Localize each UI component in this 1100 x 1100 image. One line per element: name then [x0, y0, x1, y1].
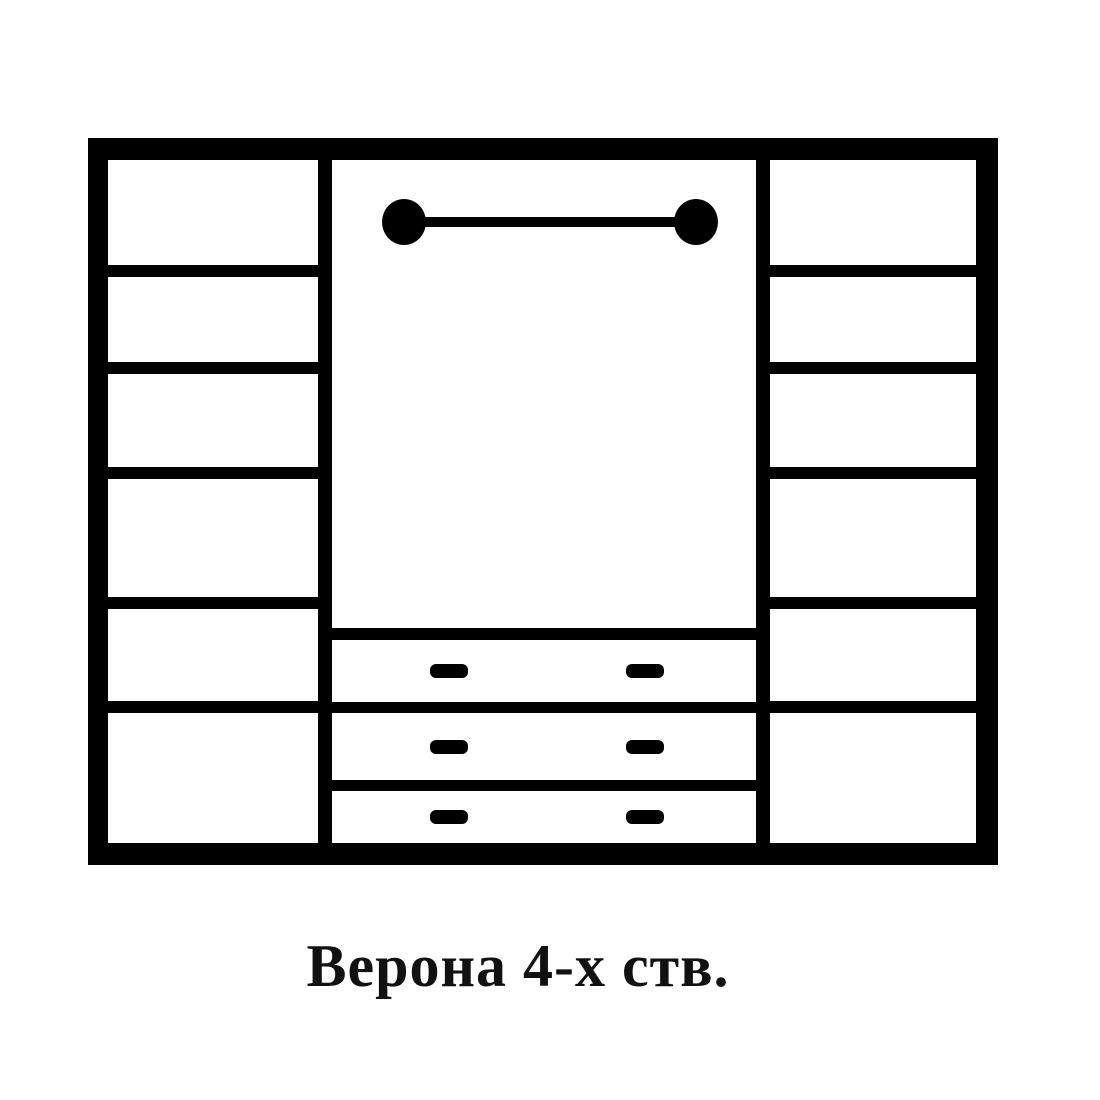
- left-shelf-3: [108, 374, 318, 467]
- drawer-handle-icon: [626, 740, 664, 754]
- drawer-handle-icon: [626, 664, 664, 678]
- drawer-3: [332, 791, 756, 843]
- right-shelf-6: [770, 713, 976, 843]
- right-shelf-5: [770, 609, 976, 701]
- hanging-rod: [404, 217, 696, 227]
- left-shelf-1: [108, 160, 318, 265]
- rod-end-cap-left-icon: [382, 199, 426, 245]
- hanging-compartment: [332, 160, 756, 628]
- left-shelf-4: [108, 479, 318, 597]
- right-shelf-1: [770, 160, 976, 265]
- drawer-handle-icon: [430, 810, 468, 824]
- left-shelf-2: [108, 277, 318, 362]
- drawer-handle-icon: [626, 810, 664, 824]
- rod-end-cap-right-icon: [674, 199, 718, 245]
- left-shelf-6: [108, 713, 318, 843]
- drawer-2: [332, 713, 756, 780]
- drawer-1: [332, 640, 756, 702]
- product-caption: Верона 4-х ств.: [73, 932, 963, 1001]
- drawer-handle-icon: [430, 664, 468, 678]
- drawer-handle-icon: [430, 740, 468, 754]
- right-shelf-4: [770, 479, 976, 597]
- wardrobe-frame: [88, 138, 998, 865]
- right-shelf-2: [770, 277, 976, 362]
- right-shelf-3: [770, 374, 976, 467]
- left-shelf-5: [108, 609, 318, 701]
- wardrobe-diagram: Верона 4-х ств.: [0, 0, 1100, 1100]
